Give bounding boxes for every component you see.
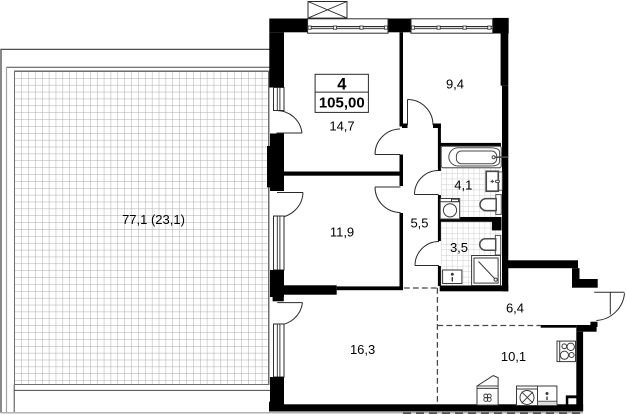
svg-text:16,3: 16,3 bbox=[350, 342, 375, 357]
svg-text:10,1: 10,1 bbox=[501, 349, 526, 364]
svg-text:77,1 (23,1): 77,1 (23,1) bbox=[122, 212, 185, 227]
svg-text:3,5: 3,5 bbox=[450, 240, 468, 255]
svg-text:4: 4 bbox=[337, 75, 347, 93]
svg-text:5,5: 5,5 bbox=[410, 216, 428, 231]
svg-text:9,4: 9,4 bbox=[446, 77, 464, 92]
svg-text:105,00: 105,00 bbox=[319, 94, 365, 111]
svg-text:11,9: 11,9 bbox=[330, 225, 354, 240]
svg-text:6,4: 6,4 bbox=[506, 301, 524, 316]
svg-text:14,7: 14,7 bbox=[329, 119, 354, 134]
svg-text:4,1: 4,1 bbox=[454, 178, 472, 193]
